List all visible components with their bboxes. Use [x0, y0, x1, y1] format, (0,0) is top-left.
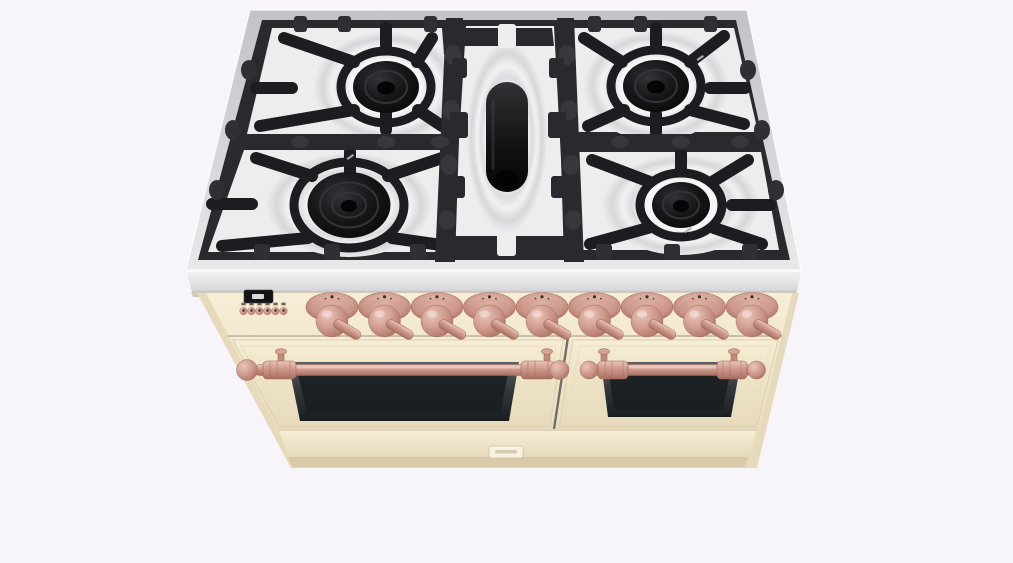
range-cooker-render: Gas cooktop with cast-iron grates: [0, 0, 1013, 563]
handle-finial-left: [237, 360, 258, 381]
front-left-burner-cap: [308, 172, 390, 238]
handle-finial-left: [580, 361, 598, 379]
right-window-inner: [609, 373, 730, 410]
bottom-plinth: [288, 457, 748, 467]
range-body: main oven door secondary oven door: [191, 290, 799, 468]
right-oven-door[interactable]: secondary oven door: [559, 340, 778, 427]
center-oval-burner: [486, 82, 528, 192]
cooktop-front-lip: [186, 270, 801, 292]
handle-bar-highlight: [263, 366, 549, 369]
cooktop: Gas cooktop with cast-iron grates: [186, 10, 801, 292]
left-window-inner: [298, 374, 508, 414]
handle-finial-right: [748, 361, 766, 379]
handle-finial-right: [550, 361, 569, 380]
storage-drawer[interactable]: [279, 429, 757, 467]
brand-nameplate: [489, 446, 523, 458]
scene-background: Gas cooktop with cast-iron grates: [0, 0, 1013, 563]
front-right-burner-cap: [652, 182, 710, 228]
clock-display: digital clock display: [244, 290, 273, 303]
rear-left-burner-cap: [353, 61, 419, 113]
rear-right-burner-cap: [623, 60, 689, 112]
